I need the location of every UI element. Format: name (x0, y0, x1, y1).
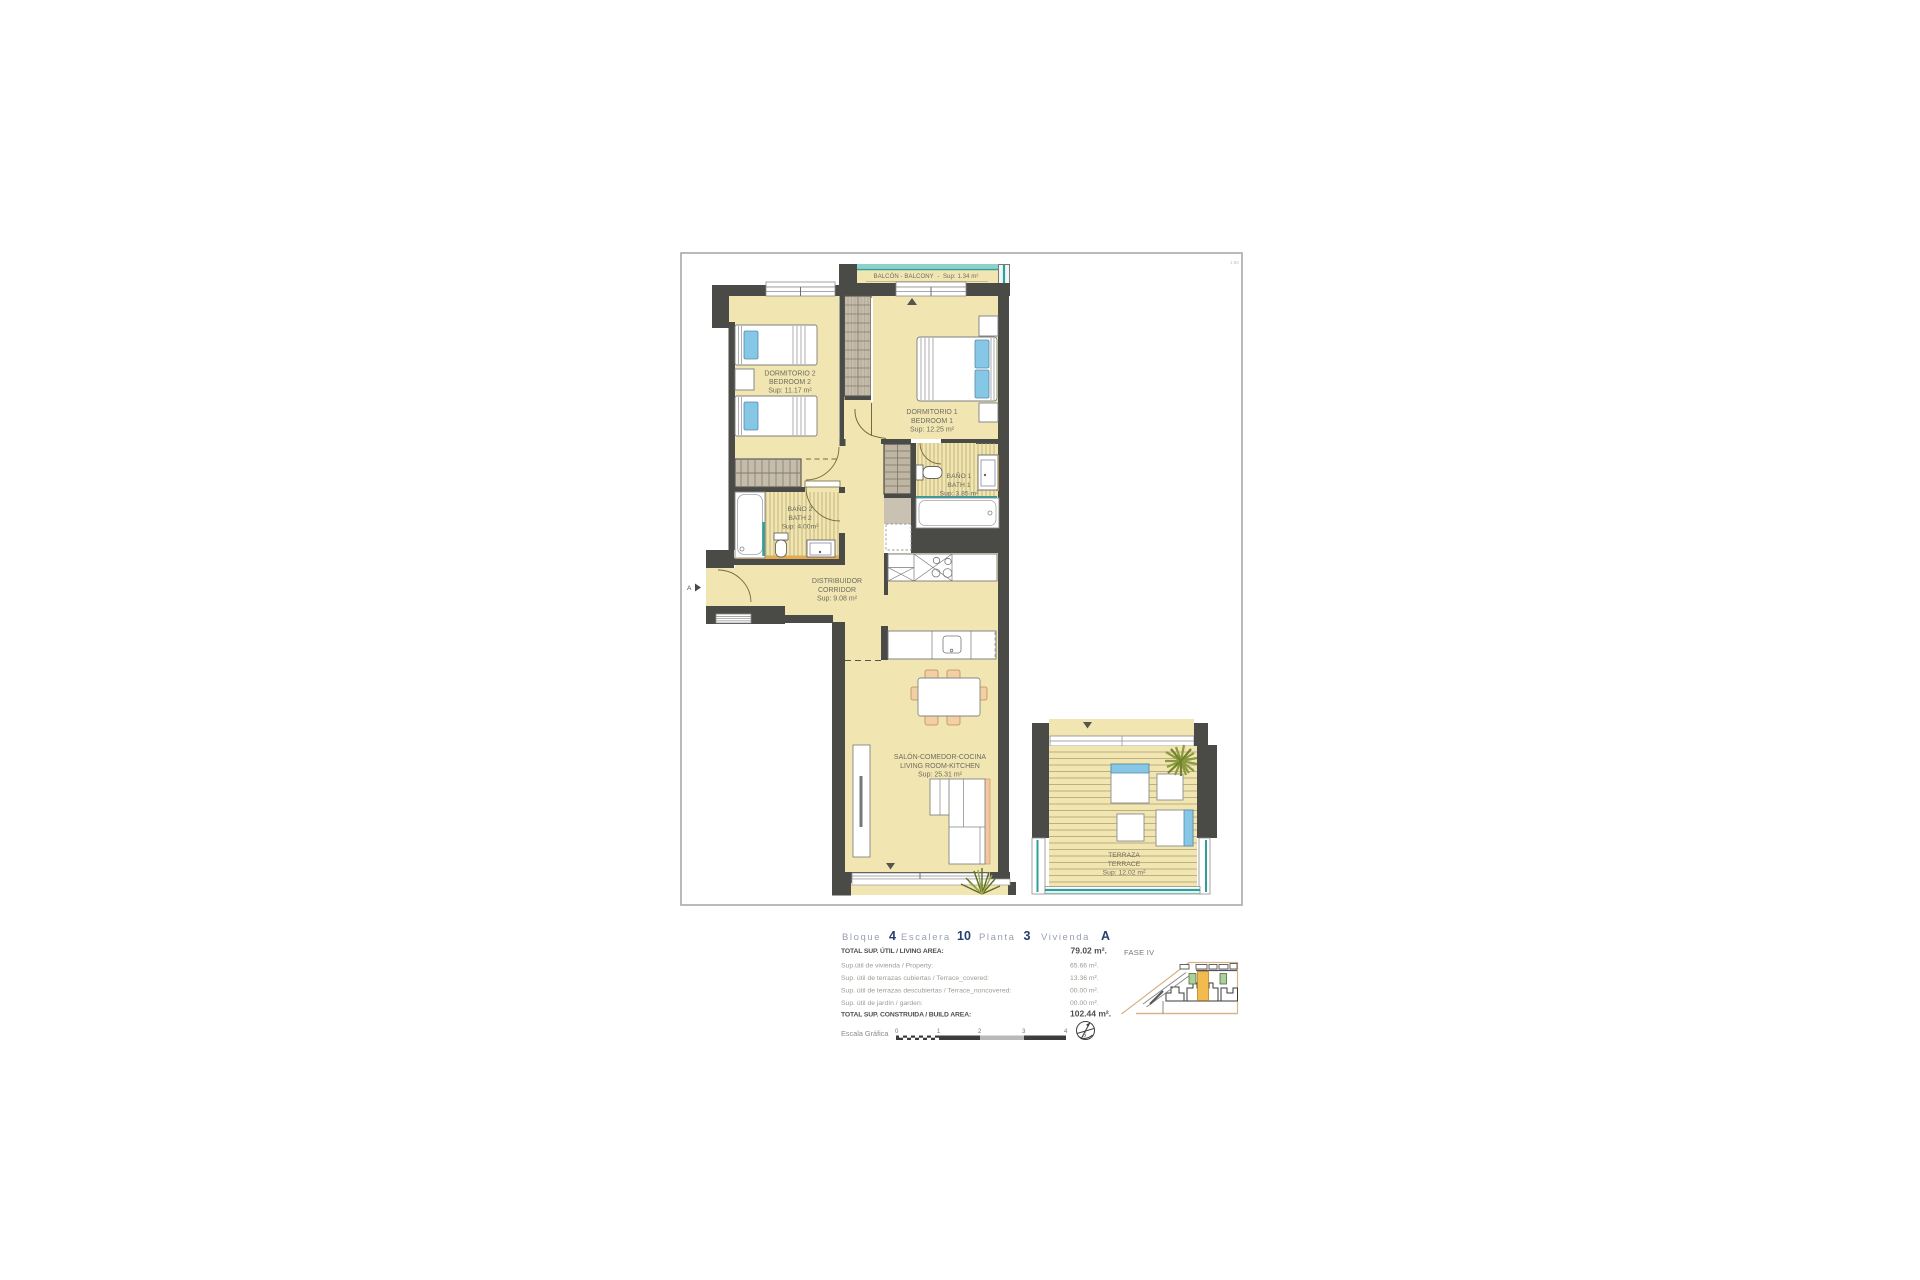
svg-text:Sup: 12.25 m²: Sup: 12.25 m² (910, 427, 955, 434)
svg-text:Sup: 9.08 m²: Sup: 9.08 m² (817, 596, 858, 603)
svg-text:1:50: 1:50 (1230, 260, 1239, 265)
svg-text:A: A (1101, 929, 1110, 943)
svg-text:Sup: 12.02 m²: Sup: 12.02 m² (1103, 870, 1146, 877)
svg-text:BAÑO 2: BAÑO 2 (788, 504, 813, 513)
svg-text:65.66 m².: 65.66 m². (1070, 963, 1099, 970)
svg-text:4: 4 (889, 929, 896, 943)
svg-text:Sup: 4.00m²: Sup: 4.00m² (781, 524, 819, 531)
svg-text:LIVING ROOM-KITCHEN: LIVING ROOM-KITCHEN (900, 763, 980, 770)
svg-text:BALCÓN - BALCONY - Sup: 1.34: BALCÓN - BALCONY - Sup: 1.34 m² (874, 273, 979, 280)
svg-text:3: 3 (1024, 929, 1031, 943)
svg-text:DISTRIBUIDOR: DISTRIBUIDOR (812, 578, 862, 585)
svg-text:CORRIDOR: CORRIDOR (818, 587, 856, 594)
svg-text:Vivienda: Vivienda (1041, 932, 1090, 943)
svg-text:Sup. útil de terrazas descubie: Sup. útil de terrazas descubiertas / Ter… (841, 988, 1011, 995)
svg-text:Escala Gráfica: Escala Gráfica (841, 1029, 889, 1038)
svg-text:TERRACE: TERRACE (1108, 861, 1141, 868)
svg-text:10: 10 (957, 929, 971, 943)
svg-text:Sup. útil de terrazas cubierta: Sup. útil de terrazas cubiertas / Terrac… (841, 975, 989, 982)
svg-text:TOTAL SUP. ÚTIL / LIVING AREA:: TOTAL SUP. ÚTIL / LIVING AREA: (841, 946, 944, 955)
svg-text:79.02 m².: 79.02 m². (1071, 946, 1107, 956)
svg-text:DORMITORIO 2: DORMITORIO 2 (764, 371, 815, 378)
svg-text:13.36 m².: 13.36 m². (1070, 975, 1099, 982)
svg-text:Sup: 25.31 m²: Sup: 25.31 m² (918, 772, 963, 779)
svg-text:TERRAZA: TERRAZA (1108, 852, 1140, 859)
svg-text:Sup: 11.17 m²: Sup: 11.17 m² (768, 388, 812, 395)
svg-text:Sup.útil de vivienda / Propert: Sup.útil de vivienda / Property: (841, 963, 933, 970)
svg-text:SALÓN-COMEDOR-COCINA: SALÓN-COMEDOR-COCINA (894, 752, 987, 761)
svg-text:FASE IV: FASE IV (1124, 948, 1154, 957)
svg-text:S: S (1083, 1033, 1087, 1039)
svg-text:A: A (687, 585, 692, 592)
svg-text:Planta: Planta (979, 932, 1016, 943)
svg-text:BEDROOM 1: BEDROOM 1 (911, 418, 953, 425)
svg-text:BATH 1: BATH 1 (947, 482, 971, 489)
svg-text:BEDROOM 2: BEDROOM 2 (769, 379, 811, 386)
svg-text:Sup. útil de jardín / garden:: Sup. útil de jardín / garden: (841, 1000, 923, 1007)
svg-text:TOTAL SUP. CONSTRUIDA / BUILD: TOTAL SUP. CONSTRUIDA / BUILD AREA: (841, 1012, 971, 1019)
svg-text:DORMITORIO 1: DORMITORIO 1 (906, 409, 957, 416)
svg-text:Sup: 3.85 m²: Sup: 3.85 m² (940, 491, 980, 498)
svg-text:Bloque: Bloque (842, 932, 881, 943)
svg-text:BAÑO 1: BAÑO 1 (947, 471, 972, 480)
svg-text:BATH 2: BATH 2 (788, 515, 812, 522)
svg-text:Escalera: Escalera (901, 932, 951, 943)
svg-text:00.00 m².: 00.00 m². (1070, 1000, 1099, 1007)
svg-text:102.44 m².: 102.44 m². (1070, 1009, 1111, 1019)
svg-text:00.00 m².: 00.00 m². (1070, 988, 1099, 995)
